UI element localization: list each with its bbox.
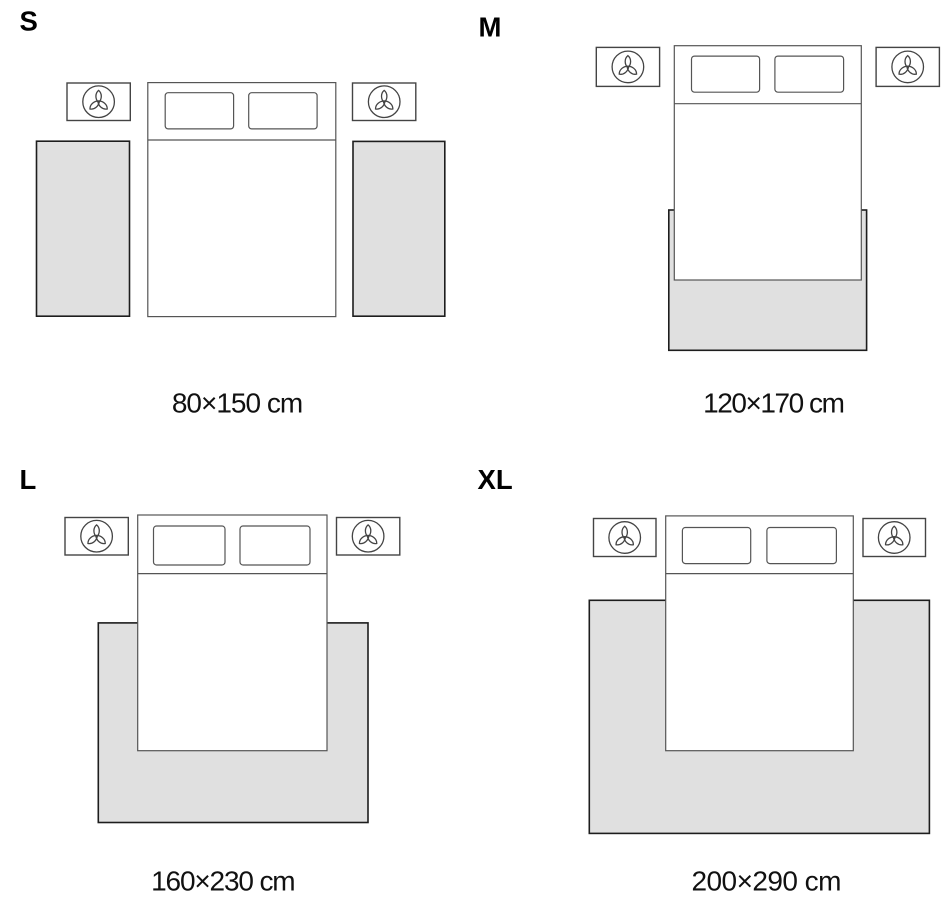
svg-text:200×290 cm: 200×290 cm [692,865,841,896]
svg-text:120×170 cm: 120×170 cm [703,387,844,418]
svg-text:M: M [479,11,502,42]
svg-text:XL: XL [478,464,513,495]
svg-text:S: S [20,5,38,36]
svg-text:80×150 cm: 80×150 cm [172,387,302,418]
svg-text:160×230 cm: 160×230 cm [151,865,294,896]
svg-text:L: L [20,464,37,495]
